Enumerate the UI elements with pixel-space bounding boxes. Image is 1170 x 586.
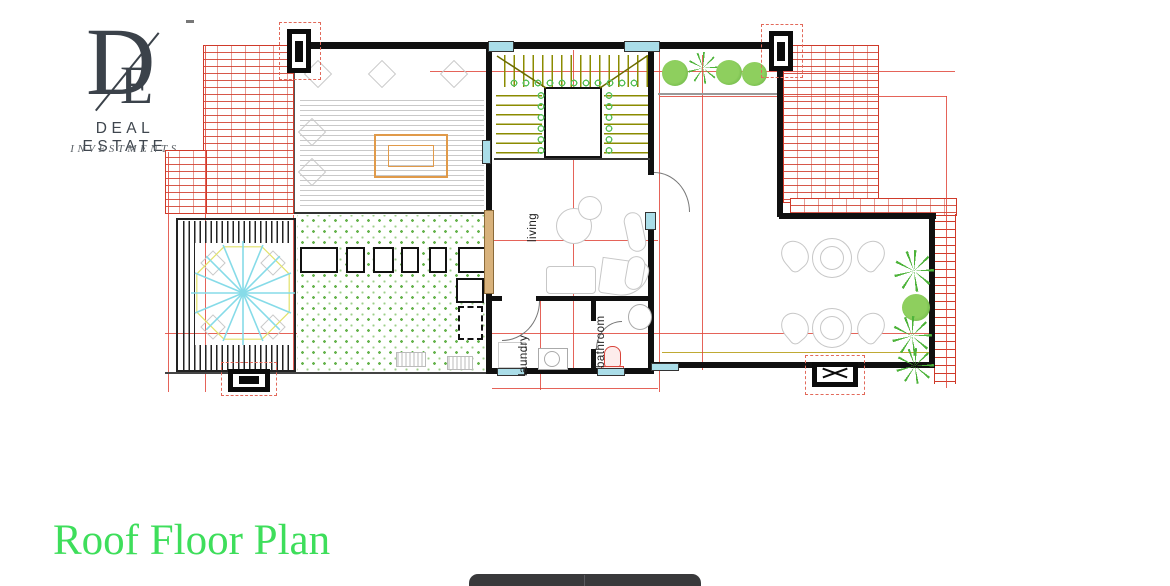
column-top-right-core — [777, 42, 785, 61]
roof-brick-hatch-left-lower — [165, 150, 207, 214]
floor-plan: living laundry bathroom — [0, 0, 1170, 586]
stair-step-markers-left — [536, 90, 546, 156]
outdoor-table-inner — [388, 145, 434, 167]
plan-bottom-edge-left — [165, 372, 495, 374]
terrace-edge — [294, 212, 487, 214]
planter-box — [300, 247, 338, 273]
dimension-line — [660, 96, 947, 97]
planter-box — [401, 247, 419, 273]
plant-diamond-icon — [368, 60, 396, 88]
column-marker — [597, 368, 625, 376]
page: D E DEAL ESTATE INVESTMENTS — [0, 0, 1170, 586]
sink — [628, 304, 652, 330]
wall-indoor-right-lower — [648, 213, 654, 372]
planter-box — [458, 247, 486, 273]
dining-chair — [851, 307, 890, 347]
wall-indoor-right-upper — [648, 49, 654, 175]
dining-chair — [851, 235, 890, 275]
palm-icon — [688, 52, 718, 84]
dimension-line — [702, 55, 703, 370]
washing-machine-drum — [544, 351, 560, 367]
dimension-line — [168, 152, 169, 392]
column-marker — [624, 41, 660, 52]
planter-box — [346, 247, 365, 273]
dining-table-inner — [820, 316, 844, 340]
column-marker — [488, 41, 514, 52]
pergola — [176, 218, 296, 372]
plan-mark — [186, 20, 194, 23]
column-marker — [482, 140, 491, 164]
bottom-bar[interactable] — [469, 574, 701, 586]
palm-icon — [896, 348, 934, 384]
planter-box — [429, 247, 447, 273]
palm-icon — [894, 250, 934, 292]
roof-brick-ladder-right-edge — [934, 214, 956, 384]
stair-step-markers-top — [508, 78, 640, 88]
bench — [396, 352, 426, 367]
wall-terrace-top — [779, 213, 936, 219]
bench — [447, 356, 473, 370]
wall-terrace-bottom — [654, 362, 935, 368]
page-title: Roof Floor Plan — [53, 516, 330, 565]
planter-box — [456, 278, 484, 303]
column-bottom-left-core — [239, 376, 259, 384]
door-arc-living-terrace — [654, 172, 690, 212]
dimension-line — [659, 50, 660, 392]
dining-chair — [775, 307, 814, 347]
side-table — [578, 196, 602, 220]
dining-table-inner — [820, 246, 844, 270]
shrub-icon — [716, 60, 742, 85]
column-bottom-right — [812, 362, 858, 387]
dimension-line — [946, 96, 947, 388]
room-label-laundry: laundry — [518, 328, 538, 376]
planter-strip-edge — [658, 93, 777, 95]
dimension-line — [540, 300, 541, 390]
room-label-bathroom: bathroom — [595, 304, 615, 368]
bottom-bar-right-segment[interactable] — [585, 574, 701, 586]
plant-diamond-icon — [440, 60, 468, 88]
umbrella-icon — [190, 238, 296, 350]
bottom-bar-left-segment[interactable] — [469, 574, 584, 586]
sofa — [546, 266, 596, 294]
column-marker — [651, 363, 679, 371]
column-top-left-core — [295, 41, 303, 62]
dining-chair — [775, 235, 814, 275]
planter-box-dashed — [458, 306, 483, 340]
dimension-line — [492, 388, 658, 389]
room-label-living: living — [527, 198, 547, 242]
stair-bottom-edge — [494, 158, 650, 160]
wall-top — [297, 42, 779, 49]
shrub-icon — [662, 60, 688, 86]
sliding-door-leaf — [484, 210, 494, 294]
stair-void — [544, 87, 602, 158]
column-marker — [645, 212, 656, 230]
planter-box — [373, 247, 394, 273]
stair-step-markers-right — [604, 90, 614, 156]
